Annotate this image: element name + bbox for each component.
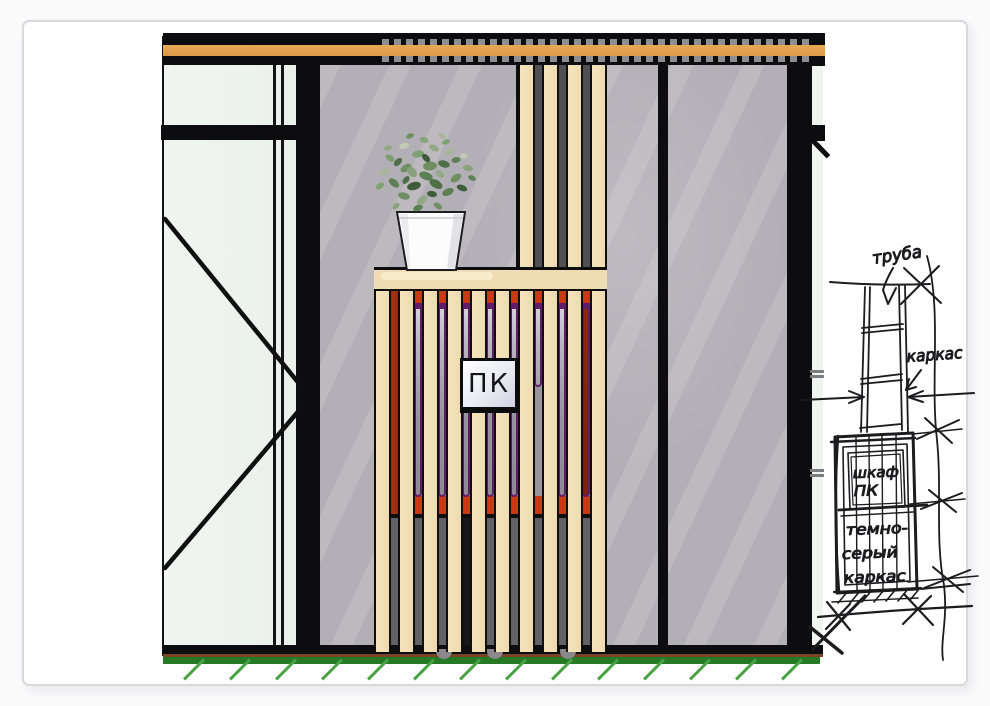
sketch-label-pipe: труба bbox=[871, 242, 923, 269]
width-dimension bbox=[802, 391, 974, 403]
slat bbox=[590, 63, 607, 267]
sketch-label-frame: каркас bbox=[906, 343, 963, 366]
slat bbox=[374, 291, 391, 652]
slat bbox=[494, 291, 511, 652]
sketch-pipe-column bbox=[860, 286, 908, 432]
door-swing-lines bbox=[163, 36, 320, 660]
slat bbox=[542, 63, 559, 267]
slat bbox=[566, 291, 583, 652]
plant bbox=[360, 128, 500, 278]
annotation-sketch: труба каркас шкаф ПК темно- серый каркас bbox=[800, 240, 985, 670]
sketch-label-cabinet-2: ПК bbox=[854, 483, 879, 500]
sketch-label-dark-2: серый bbox=[842, 543, 899, 563]
fire-cabinet-label: ПК bbox=[460, 358, 520, 413]
pipe-pointer bbox=[883, 268, 896, 304]
slat bbox=[446, 291, 463, 652]
slat bbox=[518, 291, 535, 652]
pipe bbox=[414, 309, 422, 497]
sketch-base bbox=[810, 584, 972, 653]
slat bbox=[542, 291, 559, 652]
slat bbox=[566, 63, 583, 267]
fire-cabinet-label-text: ПК bbox=[468, 369, 510, 399]
wall-joint-line bbox=[658, 62, 668, 648]
slat bbox=[470, 291, 487, 652]
sketch-label-dark-3: каркас bbox=[844, 567, 907, 587]
slat bbox=[518, 63, 535, 267]
slat bbox=[398, 291, 415, 652]
pipe-return bbox=[582, 309, 590, 497]
dimension-ticks bbox=[908, 256, 978, 660]
sketch-label-dark-1: темно- bbox=[846, 519, 909, 539]
pipe bbox=[558, 309, 566, 497]
slat bbox=[422, 291, 439, 652]
frame-pointer bbox=[906, 370, 921, 390]
sketch-label-cabinet-1: шкаф bbox=[853, 464, 900, 482]
pipe bbox=[438, 309, 446, 497]
slat bbox=[590, 291, 607, 652]
plant-pot bbox=[397, 212, 465, 270]
pipe-bend bbox=[534, 309, 542, 387]
plant-foliage bbox=[375, 132, 477, 213]
